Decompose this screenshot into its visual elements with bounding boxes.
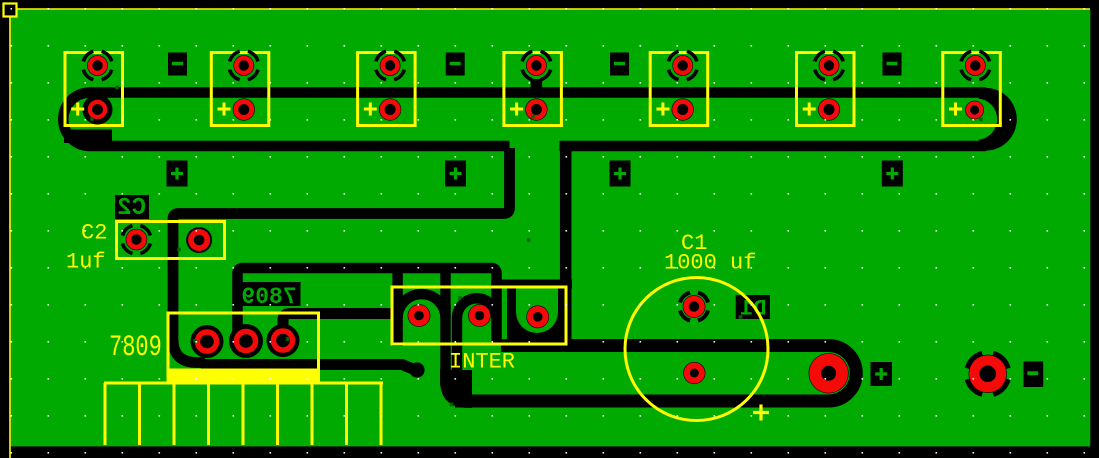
svg-text:C2: C2 bbox=[117, 195, 146, 222]
svg-text:1000 uf: 1000 uf bbox=[664, 251, 756, 276]
svg-text:C2: C2 bbox=[81, 221, 107, 246]
svg-text:7809: 7809 bbox=[109, 330, 162, 364]
svg-text:1uf: 1uf bbox=[66, 250, 106, 275]
svg-text:INTER: INTER bbox=[449, 350, 515, 375]
svg-text:D1: D1 bbox=[740, 297, 766, 322]
svg-text:7809: 7809 bbox=[241, 284, 296, 310]
